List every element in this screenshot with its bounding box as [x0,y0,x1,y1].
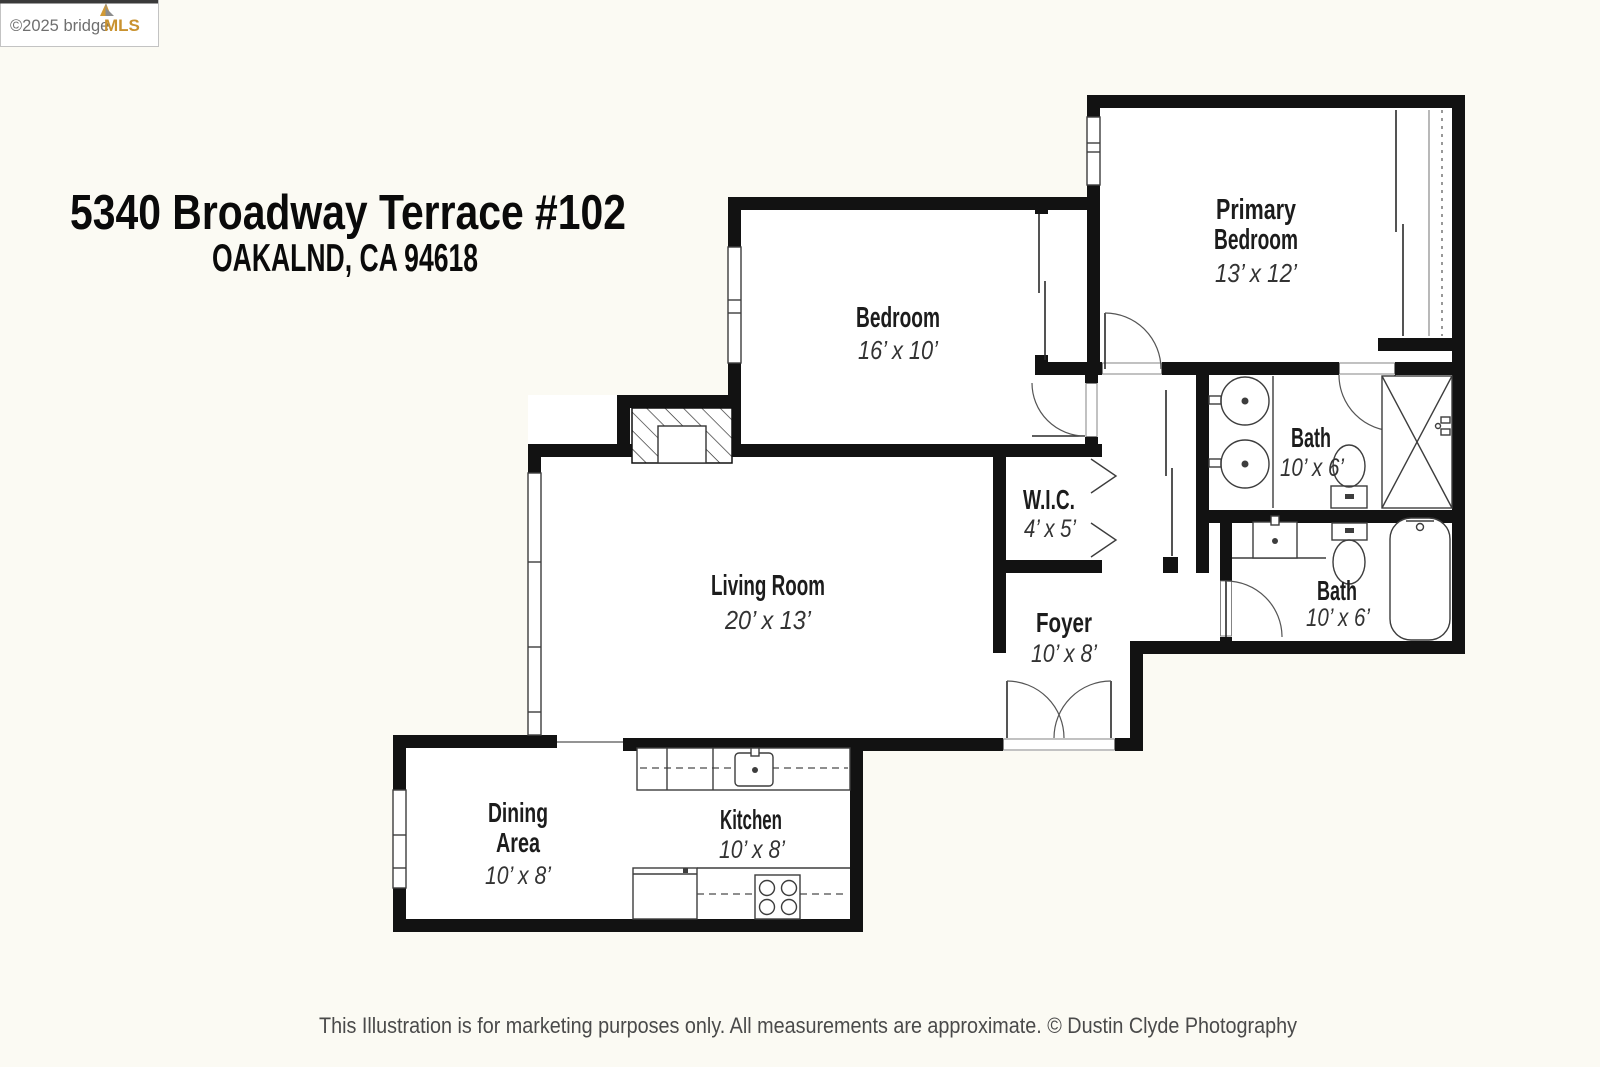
svg-text:4’ x 5’: 4’ x 5’ [1024,515,1076,543]
floorplan-image: ©2025 bridge MLS 5340 Broadway Terrace #… [0,0,1600,1067]
svg-text:Foyer: Foyer [1036,607,1092,638]
svg-text:Primary: Primary [1216,194,1296,226]
address-line1: 5340 Broadway Terrace #102 [70,186,626,240]
address-line2: OAKALND, CA 94618 [212,237,478,280]
bedroom-label: Bedroom 16’ x 10’ [856,302,940,365]
bathtub-icon [1390,518,1450,640]
svg-text:W.I.C.: W.I.C. [1023,484,1075,515]
svg-text:Living Room: Living Room [711,570,825,602]
kitchen-label: Kitchen 10’ x 8’ [719,804,785,864]
svg-text:20’ x 13’: 20’ x 13’ [724,605,812,635]
watermark-copyright-text: ©2025 bridge [10,17,109,35]
refrigerator-icon [633,868,697,919]
kitchen-sink-icon [735,748,773,786]
living-room-window [528,473,541,735]
svg-text:Kitchen: Kitchen [720,804,782,835]
watermark: ©2025 bridge MLS [0,0,159,47]
shower-icon [1382,376,1452,508]
svg-text:10’ x 8’: 10’ x 8’ [485,862,551,890]
fireplace [632,408,732,463]
svg-text:10’ x 8’: 10’ x 8’ [719,836,785,864]
dining-area-window [393,790,406,888]
svg-text:10’ x 6’: 10’ x 6’ [1280,454,1344,482]
bedroom-window [728,247,741,363]
svg-text:Bath: Bath [1291,422,1331,453]
foyer-label: Foyer 10’ x 8’ [1031,607,1097,668]
svg-text:Dining: Dining [488,797,548,828]
stove-icon [755,875,800,919]
svg-text:10’ x 8’: 10’ x 8’ [1031,640,1097,668]
wic-label: W.I.C. 4’ x 5’ [1023,484,1076,543]
svg-text:Bedroom: Bedroom [856,302,940,334]
footer-disclaimer: This Illustration is for marketing purpo… [319,1013,1297,1038]
svg-text:13’ x 12’: 13’ x 12’ [1215,258,1298,288]
primary-bedroom-label: Primary Bedroom 13’ x 12’ [1214,194,1298,288]
watermark-brand-text: MLS [104,16,140,35]
svg-text:10’ x 6’: 10’ x 6’ [1306,604,1370,632]
sink-icon [1253,516,1297,558]
svg-text:Area: Area [496,827,540,858]
svg-text:Bedroom: Bedroom [1214,224,1298,256]
svg-text:16’ x 10’: 16’ x 10’ [858,335,939,365]
primary-bedroom-window [1087,117,1100,185]
svg-text:Bath: Bath [1317,575,1357,606]
